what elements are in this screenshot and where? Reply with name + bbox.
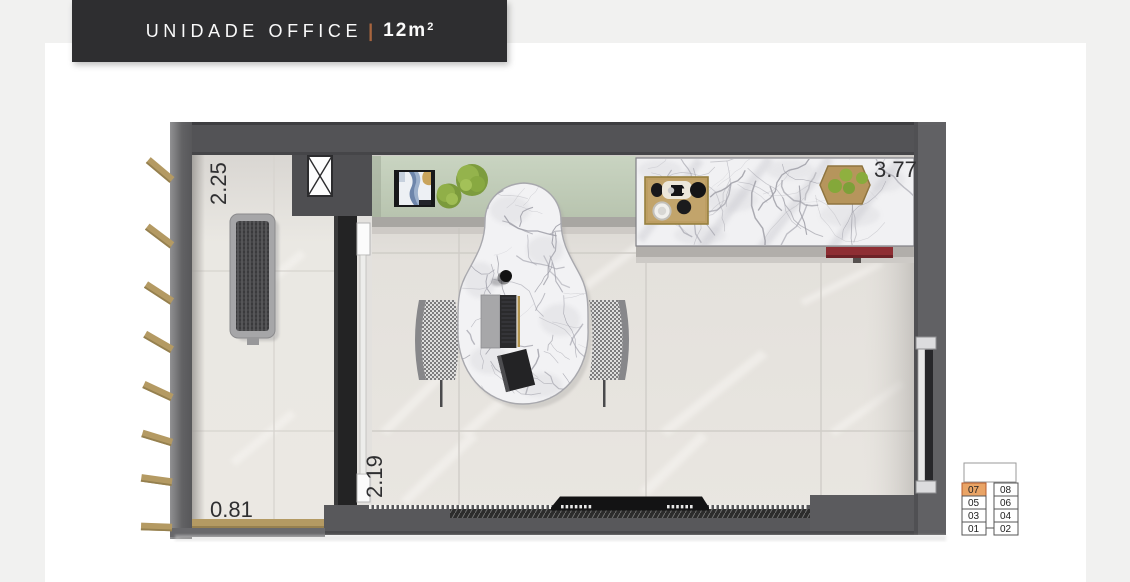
svg-text:04: 04 xyxy=(1000,511,1012,522)
svg-text:07: 07 xyxy=(968,485,980,496)
svg-text:01: 01 xyxy=(968,524,980,535)
svg-text:02: 02 xyxy=(1000,524,1012,535)
svg-text:3.77: 3.77 xyxy=(874,157,917,182)
svg-text:2.19: 2.19 xyxy=(362,455,387,498)
svg-text:08: 08 xyxy=(1000,485,1012,496)
svg-text:05: 05 xyxy=(968,498,980,509)
svg-text:03: 03 xyxy=(968,511,980,522)
svg-text:0.81: 0.81 xyxy=(210,497,253,522)
svg-text:06: 06 xyxy=(1000,498,1012,509)
svg-text:2.25: 2.25 xyxy=(206,162,231,205)
